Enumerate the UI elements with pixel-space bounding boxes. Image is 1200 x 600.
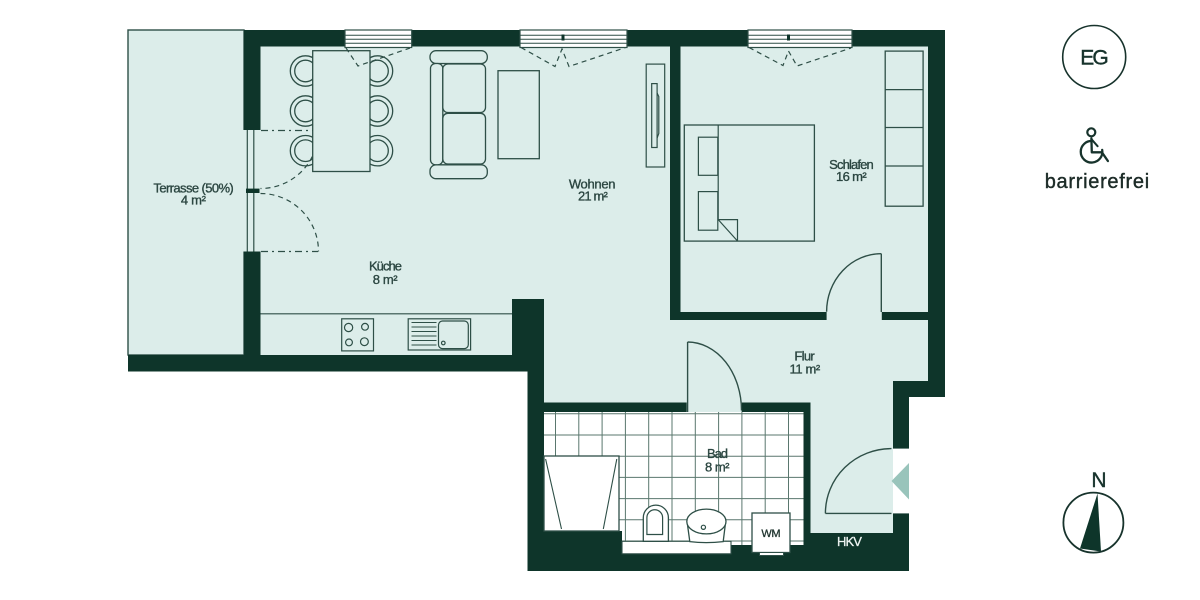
svg-text:HKV: HKV <box>837 534 862 549</box>
svg-text:barrierefrei: barrierefrei <box>1045 171 1150 193</box>
svg-text:EG: EG <box>1080 47 1107 70</box>
svg-text:WM: WM <box>761 528 780 540</box>
svg-text:8 m²: 8 m² <box>705 459 730 474</box>
svg-text:4 m²: 4 m² <box>181 193 207 208</box>
svg-text:8 m²: 8 m² <box>373 272 399 287</box>
svg-text:16 m²: 16 m² <box>836 169 867 184</box>
svg-text:11 m²: 11 m² <box>790 362 821 377</box>
svg-text:N: N <box>1091 469 1106 492</box>
svg-text:21 m²: 21 m² <box>578 188 609 203</box>
